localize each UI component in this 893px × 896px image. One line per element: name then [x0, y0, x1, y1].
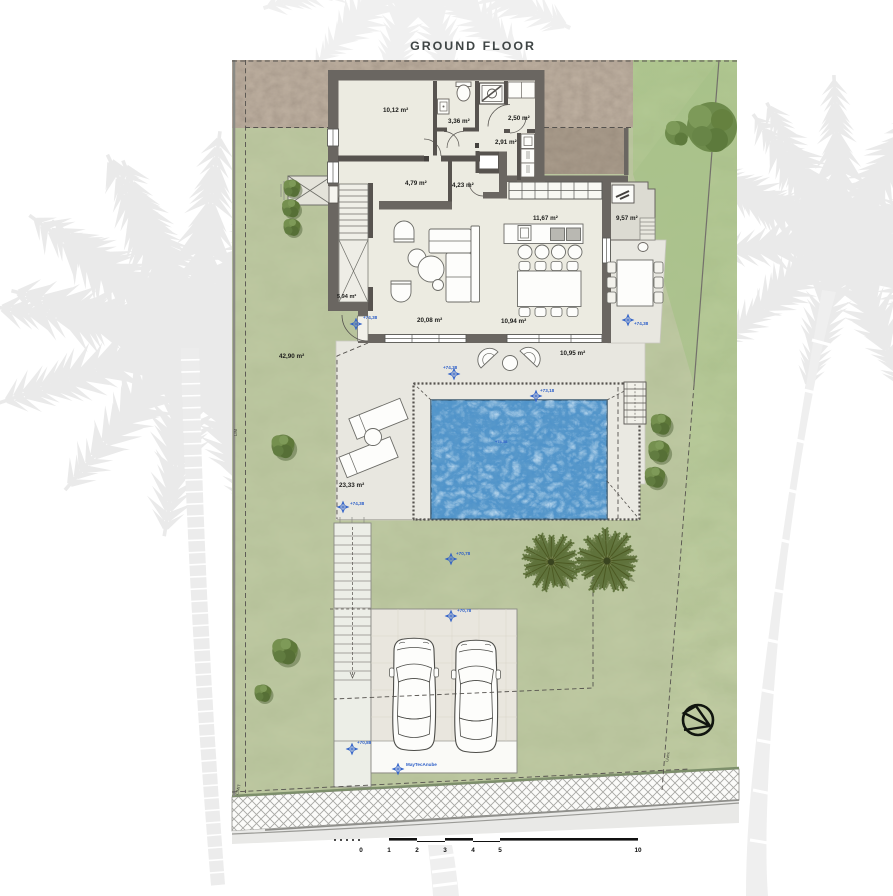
svg-text:MayTecAnube: MayTecAnube: [406, 762, 437, 767]
svg-text:+70,78: +70,78: [457, 608, 472, 613]
svg-text:9,57 m²: 9,57 m²: [616, 215, 638, 222]
svg-text:3: 3: [443, 847, 447, 854]
svg-text:LIM: LIM: [233, 429, 238, 436]
svg-text:11,67 m²: 11,67 m²: [533, 215, 558, 222]
svg-text:23,33 m²: 23,33 m²: [339, 482, 364, 489]
svg-text:10,94 m²: 10,94 m²: [501, 318, 526, 325]
svg-text:5: 5: [498, 847, 502, 854]
svg-text:3,36 m²: 3,36 m²: [448, 118, 470, 125]
svg-text:1: 1: [387, 847, 391, 854]
svg-text:4: 4: [471, 847, 475, 854]
svg-text:+74,38: +74,38: [634, 321, 649, 326]
svg-text:10: 10: [634, 847, 642, 854]
svg-text:10,95 m²: 10,95 m²: [560, 350, 585, 357]
svg-text:4,23 m²: 4,23 m²: [452, 182, 474, 189]
svg-text:20,08 m²: 20,08 m²: [417, 317, 442, 324]
svg-text:+74,38: +74,38: [443, 365, 458, 370]
svg-text:4,79 m²: 4,79 m²: [405, 180, 427, 187]
svg-text:+70,78: +70,78: [456, 551, 471, 556]
svg-text:42,90 m²: 42,90 m²: [279, 353, 304, 360]
svg-text:10,12 m²: 10,12 m²: [383, 107, 408, 114]
svg-text:2,91 m²: 2,91 m²: [495, 139, 517, 146]
svg-text:+74,38: +74,38: [363, 315, 378, 320]
svg-text:2,50 m²: 2,50 m²: [508, 115, 530, 122]
svg-text:0: 0: [359, 847, 363, 854]
svg-text:2: 2: [415, 847, 419, 854]
svg-text:+74,38: +74,38: [495, 439, 508, 444]
svg-text:+73,18: +73,18: [540, 388, 555, 393]
svg-text:GROUND FLOOR: GROUND FLOOR: [410, 39, 536, 53]
svg-text:+70,88: +70,88: [357, 740, 372, 745]
svg-text:5,94 m²: 5,94 m²: [337, 293, 356, 300]
svg-text:+74,38: +74,38: [350, 501, 365, 506]
